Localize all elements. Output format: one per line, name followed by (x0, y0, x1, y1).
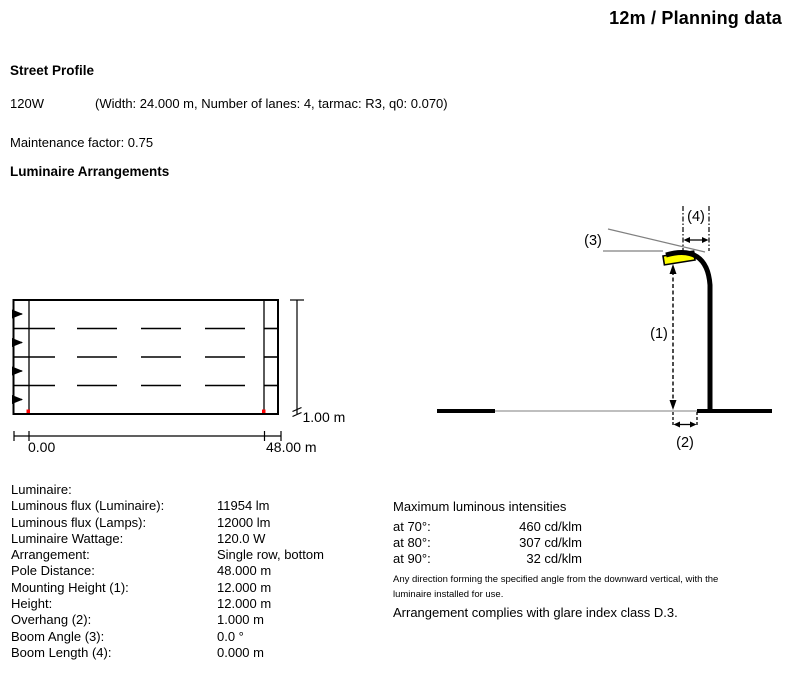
table-row: Mounting Height (1):12.000 m (11, 580, 381, 596)
row-label: Luminous flux (Lamps): (11, 515, 217, 531)
end-position-label: 48.00 m (266, 439, 317, 455)
luminaire-marker-right (262, 410, 266, 414)
pole-side-view-diagram: (4) (3) (1) (2) (420, 195, 800, 465)
offset-dimension-label: 1.00 m (303, 409, 346, 425)
table-row: Height:12.000 m (11, 596, 381, 612)
row-value: 11954 lm (217, 498, 270, 514)
wattage-label: 120W (10, 96, 44, 111)
footnote-line-2: luminaire installed for use. (393, 587, 793, 602)
row-label: Luminaire: (11, 482, 217, 498)
mounting-height-arrow-up (670, 264, 677, 274)
table-row: Luminous flux (Luminaire):11954 lm (11, 498, 381, 514)
boom-length-label: (4) (687, 209, 705, 225)
mounting-height-arrow-down (670, 400, 677, 410)
mounting-height-label: (1) (650, 326, 668, 342)
table-row: Boom Angle (3):0.0 ° (11, 629, 381, 645)
maintenance-factor: Maintenance factor: 0.75 (10, 135, 153, 150)
start-position-label: 0.00 (28, 439, 55, 455)
row-value: Single row, bottom (217, 547, 324, 563)
angle-label: at 70°: (393, 519, 453, 535)
intensities-heading: Maximum luminous intensities (393, 499, 793, 519)
angle-label: at 90°: (393, 551, 453, 567)
lane-markings (77, 329, 245, 386)
row-value: 120.0 W (217, 531, 265, 547)
overhang-label: (2) (676, 435, 694, 451)
luminaire-marker-left (27, 410, 31, 414)
angle-label: at 80°: (393, 535, 453, 551)
table-row: Luminaire Wattage:120.0 W (11, 531, 381, 547)
row-value: 12.000 m (217, 580, 271, 596)
page-title: 12m / Planning data (609, 8, 782, 29)
overhang-arrow-left (674, 422, 681, 428)
street-params: (Width: 24.000 m, Number of lanes: 4, ta… (95, 96, 448, 111)
offset-dimension (290, 300, 304, 417)
boom-length-arrow-left (684, 237, 691, 243)
row-label: Boom Angle (3): (11, 629, 217, 645)
glare-index-note: Arrangement complies with glare index cl… (393, 605, 793, 620)
intensity-row: at 80°:307 cd/klm (393, 535, 793, 551)
row-label: Mounting Height (1): (11, 580, 217, 596)
row-value: 0.000 m (217, 645, 264, 661)
table-row: Overhang (2):1.000 m (11, 612, 381, 628)
table-row: Luminous flux (Lamps):12000 lm (11, 515, 381, 531)
table-row: Arrangement:Single row, bottom (11, 547, 381, 563)
intensity-row: at 90°:32 cd/klm (393, 551, 793, 567)
row-value: 12.000 m (217, 596, 271, 612)
intensity-row: at 70°:460 cd/klm (393, 519, 793, 535)
row-value: 0.0 ° (217, 629, 244, 645)
row-value: 1.000 m (217, 612, 264, 628)
row-label: Luminaire Wattage: (11, 531, 217, 547)
table-row: Pole Distance:48.000 m (11, 563, 381, 579)
street-plan-diagram: 1.00 m 0.00 48.00 m (0, 290, 360, 465)
row-label: Pole Distance: (11, 563, 217, 579)
row-label: Overhang (2): (11, 612, 217, 628)
intensities-block: Maximum luminous intensities at 70°:460 … (393, 499, 793, 620)
luminaire-arrangements-heading: Luminaire Arrangements (10, 164, 169, 179)
table-row: Luminaire: (11, 482, 381, 498)
table-row: Boom Length (4):0.000 m (11, 645, 381, 661)
intensities-footnote: Any direction forming the specified angl… (393, 572, 793, 602)
boom-angle-label: (3) (584, 233, 602, 249)
overhang-arrow-right (690, 422, 697, 428)
row-label: Boom Length (4): (11, 645, 217, 661)
row-value: 48.000 m (217, 563, 271, 579)
street-profile-heading: Street Profile (10, 63, 94, 78)
planning-data-page: 12m / Planning data Street Profile 120W … (0, 0, 800, 675)
row-label: Luminous flux (Luminaire): (11, 498, 217, 514)
footnote-line-1: Any direction forming the specified angl… (393, 572, 793, 587)
intensity-value: 32 cd/klm (453, 551, 582, 567)
row-value: 12000 lm (217, 515, 270, 531)
boom-length-arrow-right (702, 237, 709, 243)
intensity-value: 460 cd/klm (453, 519, 582, 535)
row-label: Height: (11, 596, 217, 612)
luminaire-data-table: Luminaire: Luminous flux (Luminaire):119… (11, 482, 381, 661)
intensity-value: 307 cd/klm (453, 535, 582, 551)
row-label: Arrangement: (11, 547, 217, 563)
